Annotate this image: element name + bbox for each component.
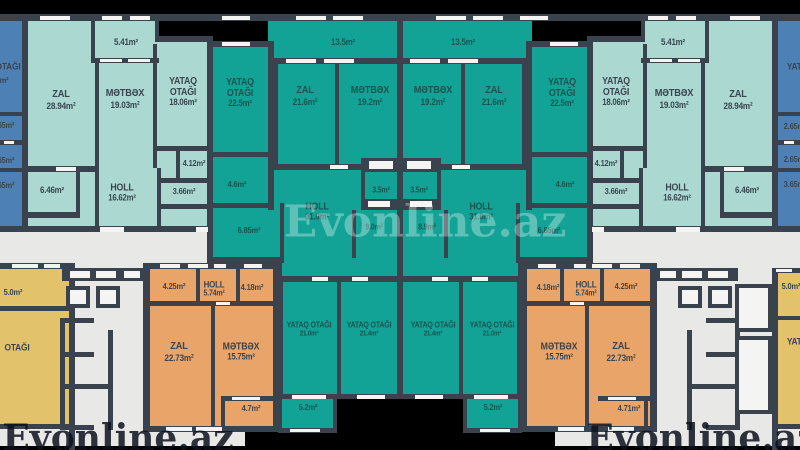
room-label-wing-left-yataq: YATAQOTAĞI22.5m² (226, 77, 254, 109)
room-label-center-balcony-right: 13.5m² (451, 37, 475, 47)
window-gap (592, 264, 612, 268)
room-label-orange-right-418: 4.18m² (537, 283, 560, 293)
window-gap (330, 165, 348, 169)
window-gap (312, 277, 328, 281)
window-gap (324, 59, 354, 63)
window-gap (232, 397, 260, 400)
window-gap (290, 429, 320, 432)
wall-segment (108, 330, 113, 430)
room-label-mint-right-balcony: 5.41m² (661, 37, 685, 47)
room-label-center-bed2-right: YATAQ OTAĞI21.4m² (411, 322, 456, 339)
window-gap (100, 227, 124, 232)
wall-segment (333, 398, 337, 430)
room-label-orange-left-418: 4.18m² (241, 283, 264, 293)
window-gap (4, 141, 14, 144)
wall-segment (273, 263, 282, 432)
room-label-center-bed2-left: YATAQ OTAĞI21.4m² (347, 322, 392, 339)
wall-segment (143, 263, 150, 432)
window-gap (473, 16, 503, 20)
wall-segment (589, 204, 643, 209)
wall-segment (705, 21, 709, 63)
wall-segment (211, 301, 215, 432)
window-gap (676, 227, 700, 232)
wall-segment (620, 151, 624, 178)
room-label-mint-right-366: 3.66m² (605, 187, 628, 197)
window-gap (410, 59, 440, 63)
wall-segment (28, 212, 80, 218)
window-gap (128, 59, 150, 62)
window-gap (296, 16, 326, 20)
window-gap (784, 141, 794, 144)
window-gap (648, 16, 668, 20)
window-gap (56, 167, 76, 171)
room-label-wing-left-685: 6.85m² (238, 226, 261, 236)
wall-segment (60, 352, 94, 357)
room-label-orange-right-metbex: MƏTBƏX15.75m² (541, 341, 578, 362)
room-label-mint-right-412: 4.12m² (595, 159, 618, 169)
wall-segment (22, 21, 28, 232)
room-label-yellow-left-otagi: OTAĞI (5, 344, 30, 355)
window-gap (40, 16, 70, 20)
room-label-mint-left-zal: ZAL28.94m² (46, 89, 75, 111)
room-label-mint-left-412: 4.12m² (183, 159, 206, 169)
wall-segment (60, 318, 65, 430)
window-gap (44, 264, 60, 268)
room-label-center-52-left: 5.2m² (299, 403, 318, 413)
window-gap (188, 264, 208, 268)
watermark-bottom-left: Evonline.az (2, 417, 233, 450)
window-gap (448, 59, 478, 63)
room-label-wing-right-46: 4.6m² (556, 180, 575, 190)
window-gap (472, 277, 488, 281)
wall-segment (95, 168, 99, 226)
wall-segment (701, 168, 705, 226)
window-gap (160, 264, 180, 268)
wall-segment (639, 168, 643, 226)
room-label-mint-right-646: 6.46m² (735, 185, 759, 195)
room-label-center-35-right: 3.5m² (410, 187, 428, 196)
room-label-yellow-left-50: 5.0m² (4, 288, 23, 298)
stair-cell (735, 284, 772, 332)
window-gap (196, 227, 208, 232)
room-label-mint-right-metbex: MƏTBƏX19.03m² (655, 88, 694, 110)
wall-segment (522, 58, 526, 170)
window-gap (520, 16, 548, 20)
wall-segment (157, 146, 211, 151)
room-label-mint-left-yataq: YATAQOTAĞI18.06m² (169, 76, 197, 108)
wall-segment (213, 203, 268, 208)
room-label-blue-left-area2: 2.65m² (0, 156, 14, 166)
room-label-center-35-left: 3.5m² (372, 187, 390, 196)
stair-cell (708, 286, 732, 308)
window-gap (452, 165, 470, 169)
wall-segment (589, 146, 643, 151)
wall-segment (196, 268, 200, 305)
window-gap (678, 59, 700, 62)
watermark-bottom-right: Evonline.az (586, 417, 800, 450)
wall-segment (720, 212, 772, 218)
window-gap (222, 16, 250, 20)
wall-segment (643, 44, 647, 168)
window-gap (570, 302, 584, 305)
room-label-center-bed1-right: YATAQ OTAĞI21.0m² (470, 322, 515, 339)
window-gap (608, 397, 636, 400)
room-label-blue-right-area2: 2.65m² (784, 155, 800, 165)
room-label-orange-left-47: 4.7m² (242, 404, 261, 414)
window-gap (650, 59, 672, 62)
wall-segment (772, 21, 778, 232)
window-gap (432, 277, 448, 281)
wall-segment (274, 164, 366, 170)
wall-segment (0, 168, 22, 172)
room-label-wing-right-yataq: YATAQOTAĞI22.5m² (548, 77, 576, 109)
wall-segment (518, 263, 527, 432)
wall-segment (157, 178, 211, 183)
room-label-orange-right-zal: ZAL22.73m² (606, 341, 635, 363)
window-gap (214, 264, 226, 268)
floor-plan: OTAĞIm²2.65m²2.65m²3.65m²5.41m²ZAL28.94m… (0, 0, 800, 450)
wall-segment (155, 14, 159, 42)
room-label-mint-right-holl: HOLL16.62m² (663, 182, 691, 203)
wall-segment (778, 168, 800, 172)
room-label-mint-right-zal: ZAL28.94m² (723, 89, 752, 111)
wall-segment (176, 151, 180, 178)
stair-cell (678, 286, 702, 308)
wall-segment (463, 398, 467, 430)
wall-segment (213, 152, 268, 157)
wall-segment (155, 36, 213, 42)
wall-segment (778, 112, 800, 116)
room-label-center-balcony-left: 13.5m² (331, 37, 355, 47)
room-label-orange-right-471: 4.71m² (618, 404, 641, 414)
room-label-mint-left-366: 3.66m² (173, 187, 196, 197)
room-label-blue-right-yataq: YATAQ (787, 63, 800, 74)
window-gap (100, 59, 122, 62)
window-gap (70, 271, 90, 278)
window-gap (333, 16, 363, 20)
room-label-blue-right-area1: 2.65m² (784, 122, 800, 132)
room-label-mint-left-holl: HOLL16.62m² (108, 182, 136, 203)
window-gap (244, 264, 262, 268)
window-gap (369, 161, 393, 169)
room-label-mint-right-yataq: YATAQOTAĞI18.06m² (602, 76, 630, 108)
room-label-center-metbex-left: MƏTBƏX19.2m² (351, 85, 390, 107)
window-gap (574, 264, 586, 268)
window-gap (550, 42, 578, 46)
room-label-blue-left-area1: 2.65m² (0, 121, 14, 131)
wall-segment (589, 178, 643, 183)
watermark-center: Evonline.az (284, 197, 567, 248)
wall-segment (236, 268, 240, 305)
window-gap (676, 16, 696, 20)
room-label-blue-left-m2: m² (0, 76, 8, 86)
window-gap (558, 427, 584, 431)
window-gap (292, 395, 326, 399)
window-gap (776, 269, 792, 272)
wall-segment (687, 384, 740, 389)
wall-segment (687, 330, 692, 430)
wall-segment (585, 301, 589, 432)
room-label-orange-right-425: 4.25m² (615, 282, 638, 292)
window-gap (730, 16, 760, 20)
wall-segment (335, 64, 339, 168)
window-gap (620, 264, 640, 268)
stair-cell (66, 286, 90, 308)
wall-segment (641, 14, 645, 42)
wall-segment (526, 41, 532, 210)
wall-segment (560, 268, 564, 305)
wall-segment (361, 172, 365, 199)
window-gap (222, 42, 250, 46)
room-label-orange-right-holl: HOLL5.74m² (576, 280, 597, 299)
window-gap (102, 16, 122, 20)
room-label-mint-left-balcony: 5.41m² (114, 37, 138, 47)
room-label-orange-left-zal: ZAL22.73m² (164, 341, 193, 363)
window-gap (357, 395, 385, 399)
window-gap (480, 429, 510, 432)
window-gap (708, 271, 728, 278)
wall-segment (157, 204, 211, 209)
wall-segment (337, 282, 341, 394)
window-gap (96, 271, 116, 278)
window-gap (12, 264, 38, 268)
wall-segment (91, 21, 95, 63)
window-gap (538, 264, 556, 268)
window-gap (130, 16, 150, 20)
window-gap (660, 271, 676, 278)
wall-segment (587, 36, 645, 42)
room-label-yellow-right-yataq: YATAQ (787, 338, 800, 349)
wall-segment (437, 172, 441, 199)
wall-segment (157, 168, 161, 226)
window-gap (474, 395, 508, 399)
window-gap (124, 271, 140, 278)
window-gap (352, 277, 368, 281)
wall-segment (461, 64, 465, 168)
room-label-orange-left-holl: HOLL5.74m² (204, 280, 225, 299)
wall-segment (0, 112, 22, 116)
wall-segment (701, 62, 705, 168)
room-label-center-zal-right: ZAL21.6m² (482, 85, 507, 107)
room-label-center-metbex-right: MƏTBƏX19.2m² (414, 85, 453, 107)
window-gap (724, 167, 744, 171)
wall-segment (60, 318, 94, 323)
room-label-center-bed1-left: YATAQ OTAĞI21.0m² (287, 322, 332, 339)
wall-segment (720, 172, 724, 216)
wall-segment (778, 316, 800, 320)
wall-segment (274, 58, 278, 170)
wall-segment (532, 152, 587, 157)
room-label-wing-left-46: 4.6m² (228, 180, 247, 190)
window-gap (682, 271, 702, 278)
room-label-yellow-right-50: 5.0m² (782, 282, 800, 292)
room-label-mint-left-metbex: MƏTBƏX19.03m² (106, 88, 145, 110)
window-gap (407, 161, 431, 169)
room-label-orange-left-metbex: MƏTBƏX15.75m² (223, 341, 260, 362)
room-label-blue-left-otagi: OTAĞI (0, 63, 20, 74)
window-gap (216, 302, 230, 305)
room-label-mint-left-646: 6.46m² (40, 185, 64, 195)
window-gap (436, 16, 466, 20)
wall-segment (600, 268, 604, 305)
wall-segment (434, 164, 526, 170)
wall-segment (459, 282, 463, 394)
window-gap (415, 395, 443, 399)
room-label-blue-right-area3: 3.65m² (784, 180, 800, 190)
wall-segment (60, 384, 113, 389)
stair-cell (96, 286, 120, 308)
window-gap (286, 59, 316, 63)
wall-segment (650, 263, 657, 432)
room-label-center-52-right: 5.2m² (484, 403, 503, 413)
room-label-orange-left-425: 4.25m² (163, 282, 186, 292)
wall-segment (95, 62, 99, 168)
room-label-center-zal-left: ZAL21.6m² (293, 85, 318, 107)
wall-segment (0, 306, 71, 311)
stair-cell (735, 336, 772, 414)
wall-segment (76, 172, 80, 216)
window-gap (592, 227, 604, 232)
room-label-blue-left-area3: 3.65m² (0, 181, 14, 191)
